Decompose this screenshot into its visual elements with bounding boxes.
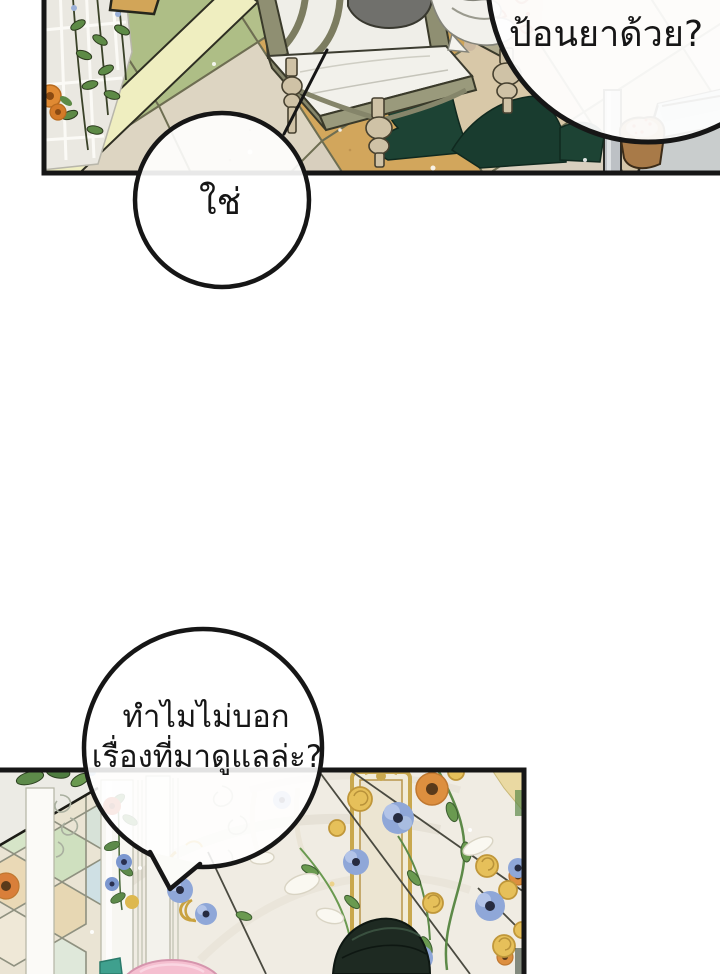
why-bubble-line1: ทำไมไม่บอก xyxy=(123,699,290,735)
comic-art: ป้อนยาด้วย? ใช่ ทำไมไม่บอก เรื่องที่มาดู… xyxy=(0,0,720,974)
comic-page: ป้อนยาด้วย? ใช่ ทำไมไม่บอก เรื่องที่มาดู… xyxy=(0,0,720,974)
blue-bud xyxy=(71,5,77,11)
why-bubble-line2: เรื่องที่มาดูแลล่ะ? xyxy=(92,735,323,775)
wood-plank xyxy=(110,0,164,14)
yes-bubble-text: ใช่ xyxy=(199,181,241,223)
feed-bubble-text: ป้อนยาด้วย? xyxy=(509,14,703,55)
